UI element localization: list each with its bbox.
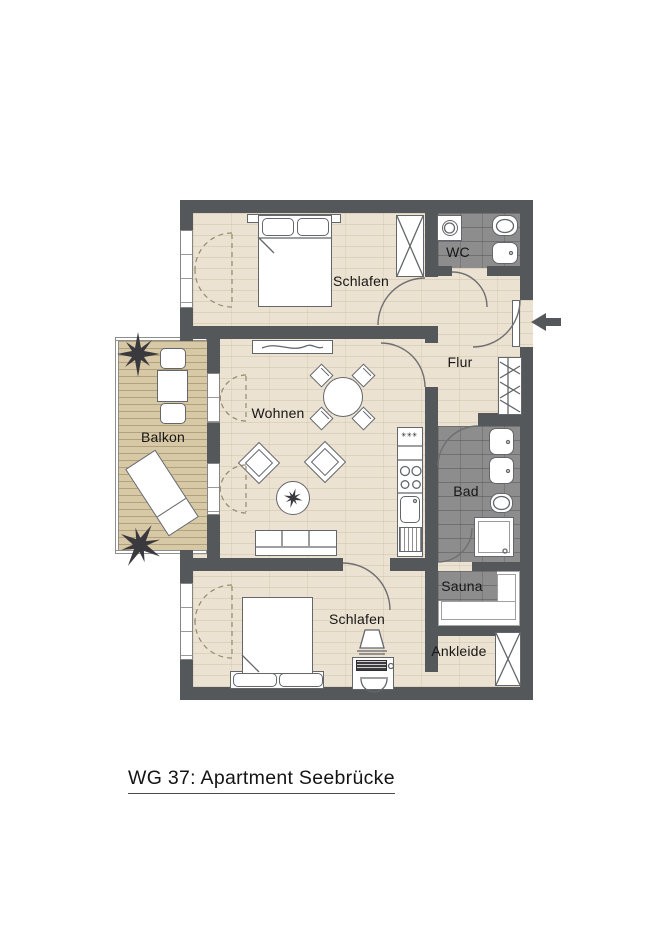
entrance-arrow-icon [531,313,561,331]
door-arcs [343,272,520,610]
room-label-wc: WC [446,244,470,260]
floor-plan-page: ✳✳✳ [0,0,670,950]
room-label-flur: Flur [448,354,473,370]
window-swing-arcs [195,233,246,658]
plant-icon [109,332,305,577]
room-label-bad: Bad [453,483,479,499]
room-label-balkon: Balkon [141,429,185,445]
room-label-sauna: Sauna [441,578,482,594]
plan-title: WG 37: Apartment Seebrücke [128,767,395,794]
room-label-schlafen-bottom: Schlafen [329,611,385,627]
plan-linework [0,0,670,950]
room-label-ankleide: Ankleide [431,643,486,659]
room-label-wohnen: Wohnen [251,405,304,421]
room-label-schlafen-top: Schlafen [333,273,389,289]
